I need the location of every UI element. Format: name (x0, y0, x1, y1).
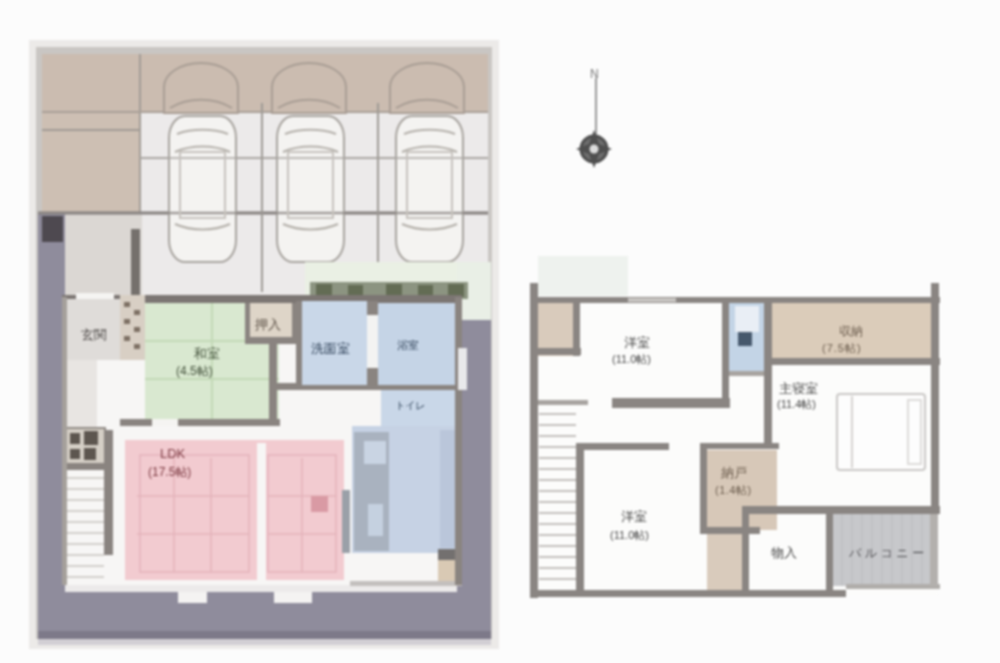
svg-text:洋室: 洋室 (621, 509, 647, 524)
svg-text:物入: 物入 (771, 545, 797, 560)
svg-text:(17.5帖): (17.5帖) (148, 465, 191, 479)
svg-text:トイレ: トイレ (395, 400, 426, 411)
svg-text:浴室: 浴室 (397, 339, 419, 351)
svg-text:N: N (590, 67, 599, 81)
svg-text:収納: 収納 (839, 324, 863, 338)
svg-text:和室: 和室 (193, 346, 220, 361)
svg-text:(11.4帖): (11.4帖) (777, 398, 816, 410)
svg-text:押入: 押入 (254, 317, 281, 332)
svg-text:玄関: 玄関 (81, 327, 107, 342)
svg-text:納戸: 納戸 (721, 465, 747, 480)
svg-text:バルコニー: バルコニー (848, 546, 928, 560)
svg-text:主寝室: 主寝室 (779, 381, 818, 396)
svg-text:(11.0帖): (11.0帖) (610, 529, 649, 541)
svg-text:洋室: 洋室 (624, 335, 650, 350)
svg-text:(1.4帖): (1.4帖) (715, 484, 752, 496)
svg-text:洗面室: 洗面室 (311, 341, 350, 356)
svg-text:(11.0帖): (11.0帖) (612, 353, 651, 365)
svg-text:(4.5帖): (4.5帖) (176, 364, 213, 378)
svg-text:LDK: LDK (160, 446, 186, 461)
svg-text:(7.5帖): (7.5帖) (822, 342, 862, 354)
